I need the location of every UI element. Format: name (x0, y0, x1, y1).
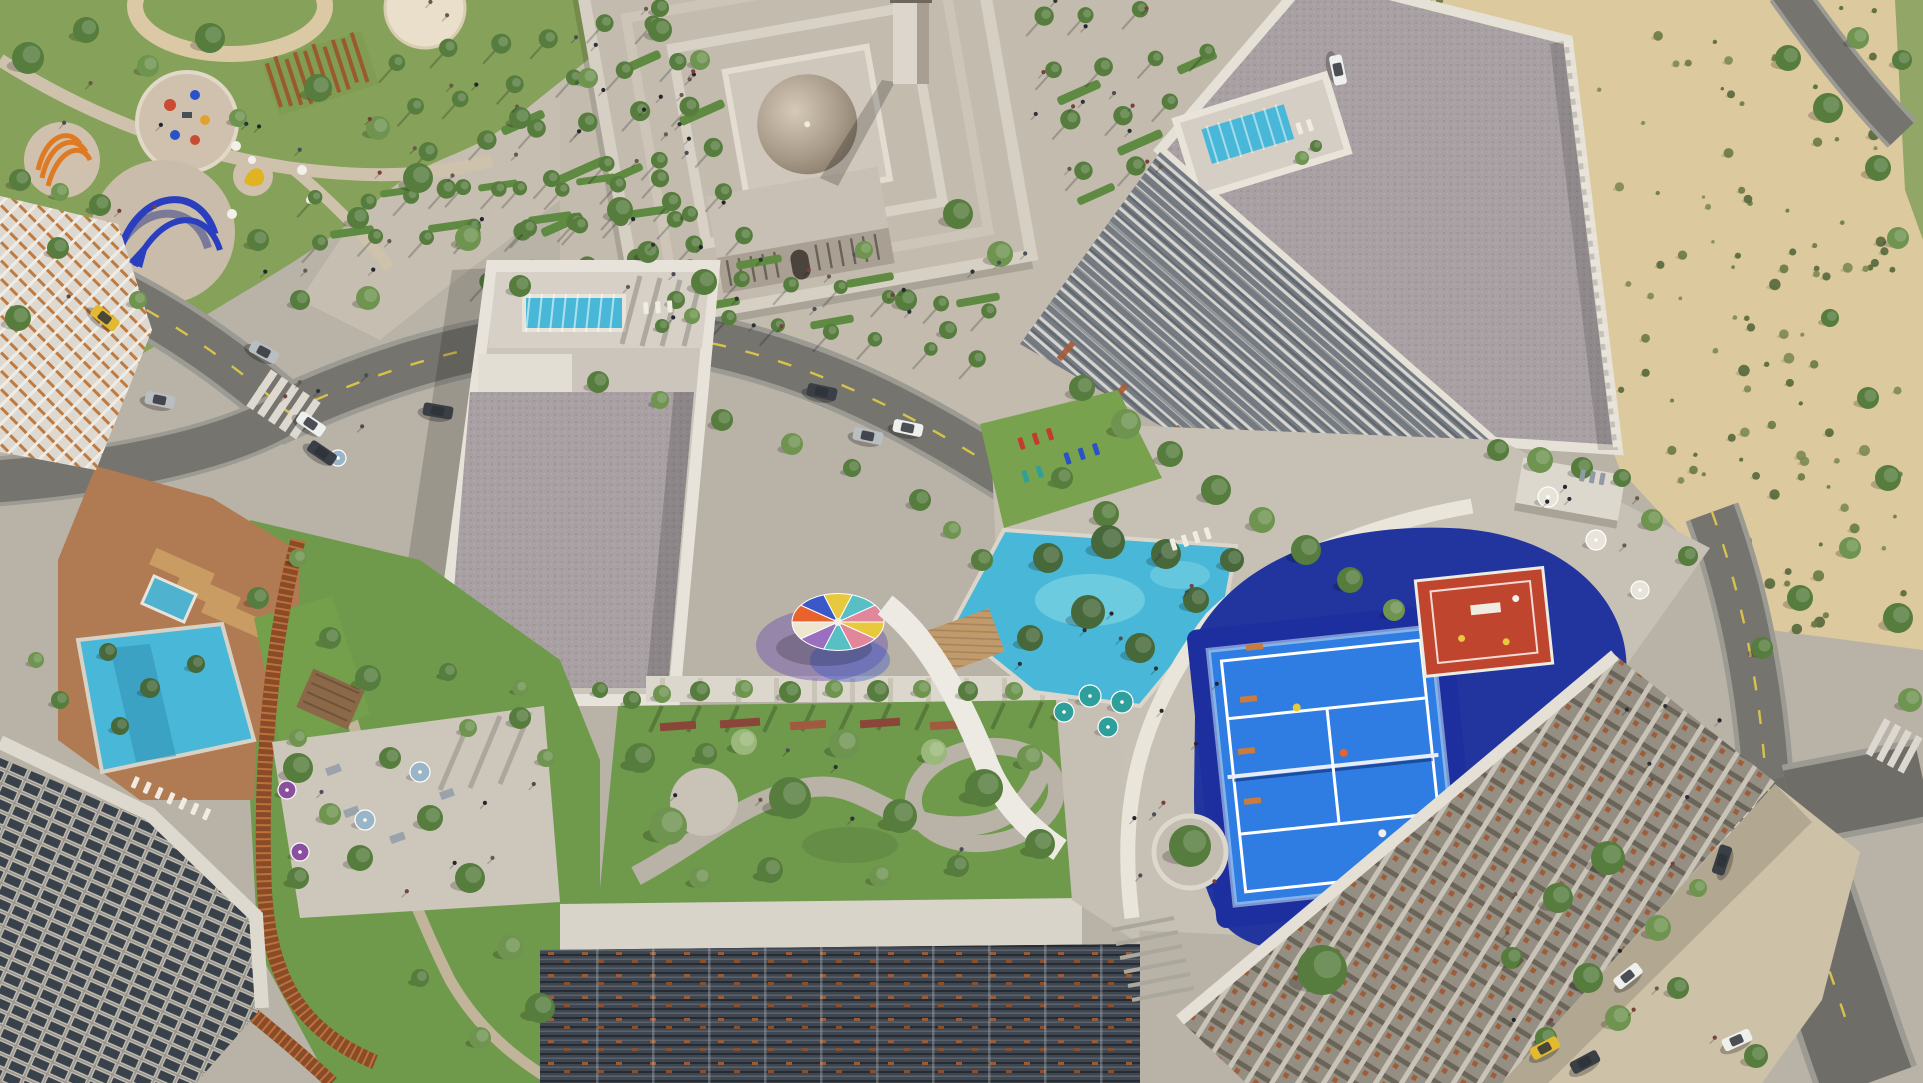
tree-highlight (718, 412, 730, 424)
person-dot (644, 7, 648, 11)
palm-highlight (657, 154, 665, 162)
tree-highlight (786, 684, 798, 696)
person-dot (117, 209, 121, 213)
palm-highlight (929, 344, 936, 351)
person-dot (779, 324, 783, 328)
tree-highlight (1695, 881, 1705, 891)
desert-shrub (1702, 472, 1706, 476)
south-parapet-band (560, 898, 1082, 952)
person-dot (159, 123, 163, 127)
tree-highlight (616, 200, 630, 214)
tree-highlight (697, 52, 708, 63)
tree-highlight (135, 293, 145, 303)
tree-highlight (659, 687, 669, 697)
tree-highlight (1884, 468, 1898, 482)
umbrella-pole (418, 770, 422, 774)
desert-shrub (1705, 204, 1711, 210)
tree-highlight (1301, 538, 1318, 555)
desert-shrub (1812, 243, 1817, 248)
tree-highlight (839, 732, 856, 749)
tree-highlight (144, 58, 156, 70)
palm-highlight (657, 172, 666, 181)
person-dot (722, 200, 726, 204)
tree-highlight (295, 731, 305, 741)
person-dot (671, 272, 675, 276)
desert-shrub (1740, 101, 1745, 106)
tree-highlight (702, 746, 714, 758)
minaret-cap (890, 0, 932, 3)
tree-highlight (1864, 390, 1876, 402)
person-dot (1512, 1018, 1516, 1022)
tree-highlight (235, 111, 245, 121)
desert-shrub (1880, 247, 1888, 255)
person-dot (1144, 6, 1148, 10)
desert-shrub (1786, 209, 1790, 213)
tree-highlight (740, 732, 754, 746)
person-dot (685, 151, 689, 155)
person-dot (364, 373, 368, 377)
tree-highlight (741, 682, 751, 692)
tree-highlight (673, 293, 683, 303)
desert-shrub (1810, 360, 1818, 368)
person-dot (601, 88, 605, 92)
person-dot (1622, 543, 1626, 547)
palm-highlight (669, 195, 679, 205)
palm-highlight (425, 145, 435, 155)
tree-highlight (374, 119, 387, 132)
palm-highlight (458, 93, 466, 101)
palm-highlight (549, 173, 558, 182)
desert-shrub (1744, 195, 1753, 204)
tree-highlight (662, 811, 683, 832)
tree-highlight (96, 197, 108, 209)
tree-highlight (874, 683, 886, 695)
person-dot (786, 748, 790, 752)
palm-highlight (318, 237, 326, 245)
person-dot (480, 217, 484, 221)
desert-shrub (1869, 53, 1877, 61)
palm-highlight (394, 57, 402, 65)
tree-highlight (117, 719, 127, 729)
tree-highlight (297, 292, 308, 303)
tree-highlight (930, 742, 944, 756)
tree-highlight (919, 682, 929, 692)
person-dot (1131, 104, 1135, 108)
palm-highlight (789, 279, 797, 287)
tree-highlight (597, 684, 606, 693)
aerial-rendering-stage (0, 0, 1923, 1083)
tree-highlight (1390, 602, 1402, 614)
tree-highlight (476, 1030, 488, 1042)
tree-highlight (417, 971, 427, 981)
person-dot (1520, 958, 1524, 962)
person-dot (514, 152, 518, 156)
person-dot (319, 790, 323, 794)
person-dot (1109, 611, 1113, 615)
desert-shrub (1900, 590, 1906, 596)
desert-shrub (1827, 485, 1831, 489)
person-dot (890, 293, 894, 297)
south-facade-rust (540, 944, 1140, 1083)
desert-shrub (1850, 523, 1860, 533)
person-dot (687, 137, 691, 141)
person-dot (812, 307, 816, 311)
palm-highlight (839, 282, 846, 289)
person-dot (532, 782, 536, 786)
tree-highlight (1192, 590, 1206, 604)
desert-shrub (1800, 333, 1804, 337)
desert-shrub (1618, 387, 1624, 393)
person-dot (1632, 1008, 1636, 1012)
lounger (667, 300, 673, 312)
person-dot (1563, 485, 1567, 489)
palm-highlight (939, 298, 947, 306)
tree-highlight (1823, 96, 1840, 113)
desert-shrub (1641, 121, 1645, 125)
person-dot (752, 323, 756, 327)
person-dot (1194, 742, 1198, 746)
desert-shrub (1874, 146, 1878, 150)
person-dot (1084, 24, 1088, 28)
desert-shrub (1764, 578, 1775, 589)
terrace-west (272, 706, 560, 918)
person-dot (1717, 718, 1721, 722)
palm-highlight (615, 178, 623, 186)
tree-highlight (1135, 636, 1152, 653)
tree-highlight (949, 523, 959, 533)
tree-highlight (386, 750, 398, 762)
tree-highlight (1228, 551, 1241, 564)
tree-highlight (506, 938, 520, 952)
desert-shrub (1679, 297, 1683, 301)
palm-highlight (1081, 164, 1090, 173)
tree-highlight (293, 756, 310, 773)
desert-shrub (1799, 401, 1803, 405)
tree-highlight (700, 272, 714, 286)
person-dot (673, 793, 677, 797)
person-dot (316, 389, 320, 393)
person-dot (88, 81, 92, 85)
desert-shrub (1872, 8, 1877, 13)
tree-highlight (1614, 1008, 1628, 1022)
aerial-rendering (0, 0, 1923, 1083)
person-dot (371, 268, 375, 272)
palm-highlight (873, 334, 880, 341)
desert-shrub (1625, 281, 1631, 287)
person-dot (303, 269, 307, 273)
palm-highlight (1205, 46, 1213, 54)
tree-highlight (1211, 478, 1228, 495)
tree-highlight (996, 244, 1010, 258)
tree-highlight (1183, 830, 1206, 853)
person-dot (453, 861, 457, 865)
tree-highlight (1846, 540, 1858, 552)
person-dot (483, 801, 487, 805)
tree-highlight (1011, 684, 1021, 694)
tree-highlight (294, 870, 306, 882)
desert-shrub (1653, 31, 1663, 41)
person-dot (1567, 497, 1571, 501)
palm-highlight (525, 222, 534, 231)
tree-highlight (1314, 141, 1321, 148)
person-dot (671, 315, 675, 319)
desert-shrub (1693, 453, 1697, 457)
desert-shrub (1735, 253, 1741, 259)
desert-shrub (1641, 334, 1650, 343)
person-dot (1685, 795, 1689, 799)
palm-highlight (1083, 10, 1091, 18)
tree-highlight (1102, 504, 1116, 518)
desert-shrub (1769, 489, 1779, 499)
tree-highlight (1026, 628, 1040, 642)
palm-highlight (691, 238, 700, 247)
tree-highlight (635, 746, 652, 763)
person-dot (67, 294, 71, 298)
tree-highlight (54, 240, 66, 252)
desert-shrub (1764, 362, 1769, 367)
tree-highlight (364, 289, 377, 302)
person-dot (959, 847, 963, 851)
tree-highlight (657, 393, 667, 403)
desert-shrub (1814, 266, 1820, 272)
desert-shrub (1813, 570, 1824, 581)
tree-highlight (954, 858, 966, 870)
tree-highlight (516, 278, 528, 290)
desert-shrub (1733, 315, 1738, 320)
person-dot (642, 108, 646, 112)
tree-highlight (82, 20, 96, 34)
palm-highlight (1051, 64, 1059, 72)
tree-highlight (1058, 470, 1070, 482)
tree-highlight (1346, 570, 1360, 584)
person-dot (631, 217, 635, 221)
person-dot (758, 798, 762, 802)
palm-highlight (1167, 96, 1175, 104)
palm-highlight (987, 306, 995, 314)
tree-highlight (657, 1, 667, 11)
desert-shrub (1893, 515, 1897, 519)
person-dot (1132, 816, 1136, 820)
desert-shrub (1702, 195, 1705, 198)
tree-highlight (543, 751, 553, 761)
person-dot (1127, 129, 1131, 133)
person-dot (1158, 553, 1162, 557)
person-dot (807, 268, 811, 272)
person-dot (1145, 159, 1149, 163)
palm-highlight (366, 196, 374, 204)
person-dot (1112, 91, 1116, 95)
desert-shrub (1784, 353, 1795, 364)
tree-highlight (1258, 510, 1272, 524)
tree-highlight (1082, 599, 1101, 618)
desert-shrub (1779, 329, 1789, 339)
person-dot (1215, 682, 1219, 686)
desert-shrub (1738, 365, 1750, 377)
tree-highlight (660, 321, 668, 329)
umbrella-pole (1106, 725, 1110, 729)
tree-highlight (445, 665, 455, 675)
tree-highlight (978, 773, 999, 794)
person-dot (378, 171, 382, 175)
desert-shrub (1670, 399, 1674, 403)
person-dot (1119, 636, 1123, 640)
palm-highlight (560, 184, 567, 191)
palm-highlight (1067, 112, 1077, 122)
tree-highlight (1602, 845, 1621, 864)
palm-highlight (602, 17, 611, 26)
desert-shrub (1825, 428, 1834, 437)
tree-highlight (516, 710, 528, 722)
person-dot (515, 104, 519, 108)
tree-highlight (57, 693, 67, 703)
palm-highlight (424, 232, 431, 239)
desert-shrub (1597, 88, 1601, 92)
person-dot (1082, 628, 1086, 632)
tree-highlight (1043, 546, 1060, 563)
palm-highlight (313, 192, 320, 199)
person-dot (474, 83, 478, 87)
tree-highlight (689, 310, 698, 319)
tree-highlight (426, 808, 440, 822)
person-dot (850, 817, 854, 821)
tree-highlight (464, 228, 478, 242)
person-dot (1018, 662, 1022, 666)
person-dot (1071, 104, 1075, 108)
umbrella-pole (298, 850, 302, 854)
red-court (1415, 568, 1552, 677)
person-dot (368, 117, 372, 121)
desert-shrub (1819, 543, 1823, 547)
person-dot (153, 205, 157, 209)
desert-shrub (1811, 621, 1818, 628)
tree-highlight (57, 185, 67, 195)
tree-highlight (585, 70, 596, 81)
palm-highlight (496, 184, 504, 192)
tree-highlight (465, 721, 475, 731)
palm-highlight (975, 353, 984, 362)
tree-highlight (697, 683, 708, 694)
desert-shrub (1784, 580, 1790, 586)
person-dot (449, 84, 453, 88)
tree-highlight (205, 26, 222, 43)
desert-shrub (1738, 187, 1745, 194)
palm-highlight (373, 231, 381, 239)
tree-highlight (1583, 966, 1600, 983)
tree-highlight (465, 866, 482, 883)
desert-shrub (1678, 477, 1685, 484)
person-dot (1505, 931, 1509, 935)
person-dot (1161, 801, 1165, 805)
tree-highlight (517, 682, 526, 691)
desert-shrub (1769, 279, 1780, 290)
person-dot (1635, 496, 1639, 500)
person-dot (1067, 167, 1071, 171)
tree-highlight (1648, 512, 1660, 524)
tree-highlight (413, 166, 430, 183)
palm-highlight (710, 141, 720, 151)
tree-highlight (1494, 442, 1506, 454)
person-dot (594, 43, 598, 47)
person-dot (902, 288, 906, 292)
person-dot (577, 129, 581, 133)
tree-highlight (1784, 48, 1798, 62)
palm-highlight (727, 312, 735, 320)
tree-highlight (254, 590, 266, 602)
person-dot (1152, 812, 1156, 816)
person-dot (1159, 165, 1163, 169)
desert-shrub (1615, 182, 1624, 191)
tree-highlight (1893, 606, 1910, 623)
desert-shrub (1740, 427, 1750, 437)
palm-highlight (675, 56, 684, 65)
tree-highlight (354, 210, 366, 222)
umbrella-pole (1594, 538, 1598, 542)
palm-highlight (721, 186, 730, 195)
person-dot (1041, 70, 1045, 74)
lawn-shade-patch (802, 827, 898, 863)
person-dot (360, 424, 364, 428)
desert-shrub (1813, 271, 1820, 278)
tree-highlight (783, 782, 806, 805)
tree-highlight (1854, 30, 1866, 42)
tree-highlight (364, 668, 378, 682)
palm-highlight (518, 183, 525, 190)
person-dot (679, 93, 683, 97)
person-dot (691, 69, 695, 73)
tree-highlight (1674, 980, 1686, 992)
person-dot (450, 173, 454, 177)
person-dot (827, 274, 831, 278)
person-dot (1138, 873, 1142, 877)
person-dot (1663, 704, 1667, 708)
tree-highlight (1300, 153, 1308, 161)
tree-highlight (1906, 691, 1919, 704)
tree-highlight (594, 374, 606, 386)
desert-shrub (1724, 148, 1734, 158)
tree-highlight (861, 243, 871, 253)
tree-highlight (1121, 412, 1138, 429)
desert-shrub (1796, 451, 1806, 461)
palm-highlight (445, 41, 454, 50)
person-dot (1671, 862, 1675, 866)
tree-highlight (687, 208, 696, 217)
desert-shrub (1862, 265, 1868, 271)
tree-highlight (1026, 748, 1040, 762)
desert-shrub (1835, 137, 1840, 142)
person-dot (1549, 1018, 1553, 1022)
person-dot (907, 310, 911, 314)
umbrella-pole (1088, 694, 1092, 698)
person-dot (445, 13, 449, 17)
desert-shrub (1656, 191, 1660, 195)
umbrella-pole (1546, 495, 1550, 499)
desert-shrub (1813, 84, 1818, 89)
tree-highlight (105, 645, 115, 655)
tree-highlight (1619, 471, 1629, 481)
person-dot (257, 124, 261, 128)
tree-highlight (1752, 1047, 1765, 1060)
palm-highlight (498, 37, 508, 47)
person-dot (405, 889, 409, 893)
tree-highlight (1874, 158, 1888, 172)
tree-highlight (656, 21, 669, 34)
tree-highlight (876, 868, 888, 880)
tree-highlight (978, 552, 990, 564)
desert-shrub (1894, 387, 1902, 395)
tree-highlight (1899, 52, 1910, 63)
person-dot (428, 0, 432, 4)
person-dot (387, 239, 391, 243)
